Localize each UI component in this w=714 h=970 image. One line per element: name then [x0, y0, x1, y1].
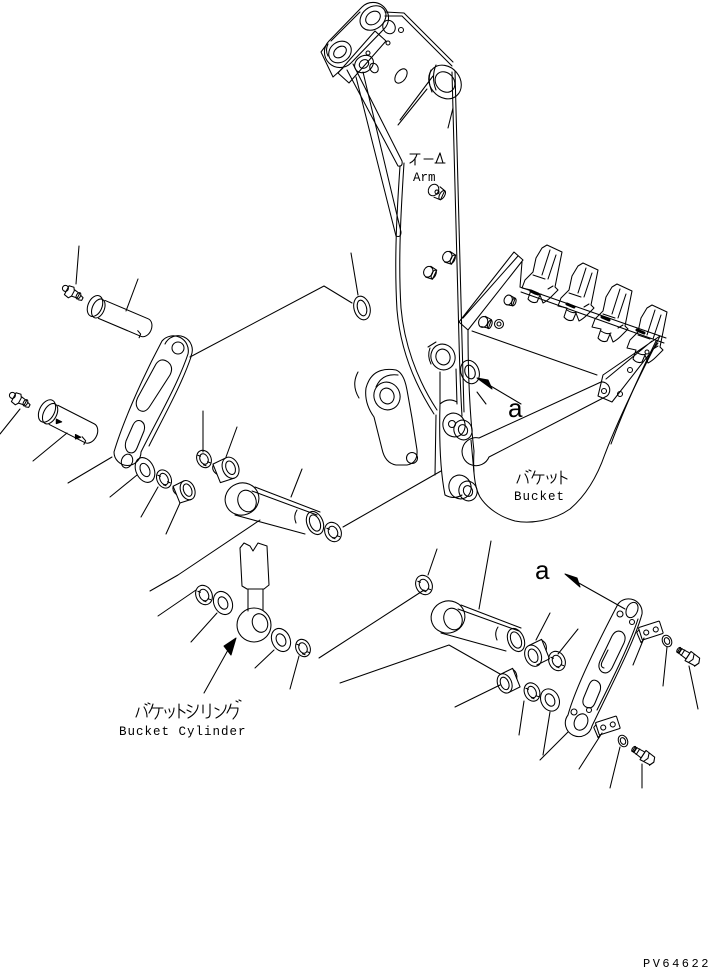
svg-text:Bucket: Bucket	[514, 490, 565, 504]
svg-text:a: a	[508, 393, 523, 423]
svg-text:Arm: Arm	[413, 171, 436, 185]
svg-text:Bucket Cylinder: Bucket Cylinder	[119, 725, 247, 739]
svg-text:PV64622: PV64622	[643, 957, 711, 970]
svg-text:a: a	[535, 555, 550, 585]
